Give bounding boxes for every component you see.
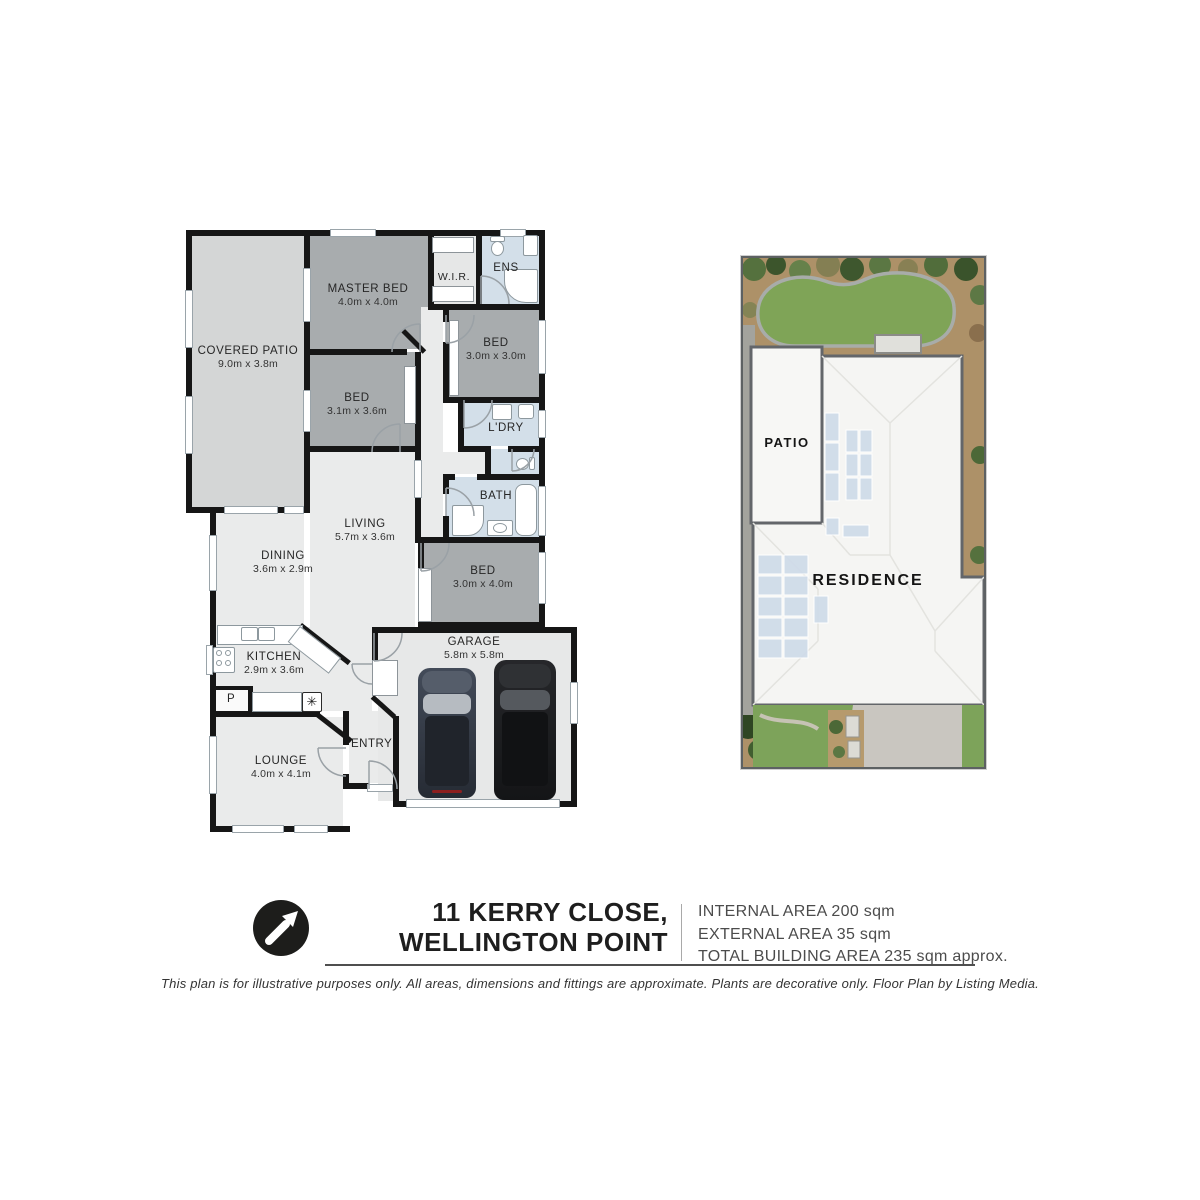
room-label-lounge: LOUNGE 4.0m x 4.1m	[216, 755, 346, 781]
shrub	[829, 720, 843, 734]
room-label-covered-patio: COVERED PATIO 9.0m x 3.8m	[183, 345, 313, 371]
shrub	[833, 746, 845, 758]
room-label-ldry: L'DRY	[441, 422, 571, 435]
room-name: ENS	[493, 262, 518, 274]
room-label-master-bed: MASTER BED 4.0m x 4.0m	[303, 283, 433, 309]
room-label-bed-1: BED 3.0m x 3.0m	[431, 337, 561, 363]
north-arrow-icon	[252, 899, 310, 957]
property-address: 11 KERRY CLOSE, WELLINGTON POINT	[399, 897, 668, 957]
car-roof	[425, 716, 469, 786]
room-name: BED	[483, 337, 508, 349]
door-arc	[374, 633, 402, 661]
divider-horizontal	[325, 964, 975, 966]
room-label-bath: BATH	[431, 490, 561, 503]
room-name: L'DRY	[488, 422, 524, 434]
room-label-living: LIVING 5.7m x 3.6m	[300, 518, 430, 544]
room-name: BATH	[480, 490, 512, 502]
room-name: BED	[470, 565, 495, 577]
room-name: LOUNGE	[255, 755, 307, 767]
room-label-garage: GARAGE 5.8m x 5.8m	[409, 636, 539, 662]
floor-plan: ✳	[0, 0, 620, 860]
room-name: GARAGE	[448, 636, 501, 648]
divider-vertical	[681, 904, 682, 961]
room-dims: 5.7m x 3.6m	[335, 531, 395, 543]
garden-bench	[875, 335, 921, 353]
room-name: MASTER BED	[328, 283, 409, 295]
room-label-kitchen: KITCHEN 2.9m x 3.6m	[209, 651, 339, 677]
stepping-stone	[848, 741, 860, 758]
disclaimer-text: This plan is for illustrative purposes o…	[0, 976, 1200, 991]
patio-roof-label: PATIO	[764, 435, 809, 450]
room-name: ENTRY	[351, 738, 392, 750]
room-label-bed-2: BED 3.1m x 3.6m	[292, 392, 422, 418]
room-label-pantry: P	[227, 693, 235, 705]
stepping-stone	[846, 716, 859, 737]
room-name: KITCHEN	[247, 651, 302, 663]
car	[494, 660, 556, 800]
room-label-dining: DINING 3.6m x 2.9m	[218, 550, 348, 576]
room-name: BED	[344, 392, 369, 404]
room-name: LIVING	[344, 518, 385, 530]
front-lawn	[962, 705, 984, 768]
room-name: COVERED PATIO	[198, 345, 299, 357]
room-dims: 4.0m x 4.0m	[338, 296, 398, 308]
internal-area: INTERNAL AREA 200 sqm	[698, 901, 1008, 924]
room-dims: 3.1m x 3.6m	[327, 405, 387, 417]
car-hood	[422, 671, 472, 693]
door-arc	[369, 761, 397, 789]
room-dims: 3.0m x 4.0m	[453, 578, 513, 590]
residence-roof-label: RESIDENCE	[812, 572, 923, 589]
room-dims: 3.6m x 2.9m	[253, 563, 313, 575]
door-arc	[372, 424, 400, 452]
door-arc	[392, 324, 420, 352]
room-dims: 2.9m x 3.6m	[244, 664, 304, 676]
car-windshield	[423, 694, 471, 714]
external-area: EXTERNAL AREA 35 sqm	[698, 924, 1008, 947]
address-line1: 11 KERRY CLOSE,	[432, 897, 668, 927]
car	[418, 668, 476, 798]
door-arc	[352, 664, 372, 684]
lawn	[758, 273, 954, 346]
room-dims: 5.8m x 5.8m	[444, 649, 504, 661]
car-taillight	[432, 790, 462, 793]
room-dims: 3.0m x 3.0m	[466, 350, 526, 362]
car-windshield	[500, 690, 550, 710]
room-label-bed-3: BED 3.0m x 4.0m	[418, 565, 548, 591]
page: ✳	[0, 0, 1200, 1200]
room-dims: 9.0m x 3.8m	[218, 358, 278, 370]
door-arc	[512, 449, 534, 471]
car-hood	[499, 664, 551, 688]
room-label-ens: ENS	[441, 262, 571, 275]
room-dims: 4.0m x 4.1m	[251, 768, 311, 780]
room-name: DINING	[261, 550, 305, 562]
area-summary: INTERNAL AREA 200 sqm EXTERNAL AREA 35 s…	[698, 901, 1008, 969]
address-line2: WELLINGTON POINT	[399, 927, 668, 957]
site-plan: PATIO RESIDENCE	[740, 255, 987, 770]
room-label-entry: ENTRY	[351, 738, 392, 750]
room-name: P	[227, 693, 235, 705]
car-roof	[502, 712, 548, 786]
